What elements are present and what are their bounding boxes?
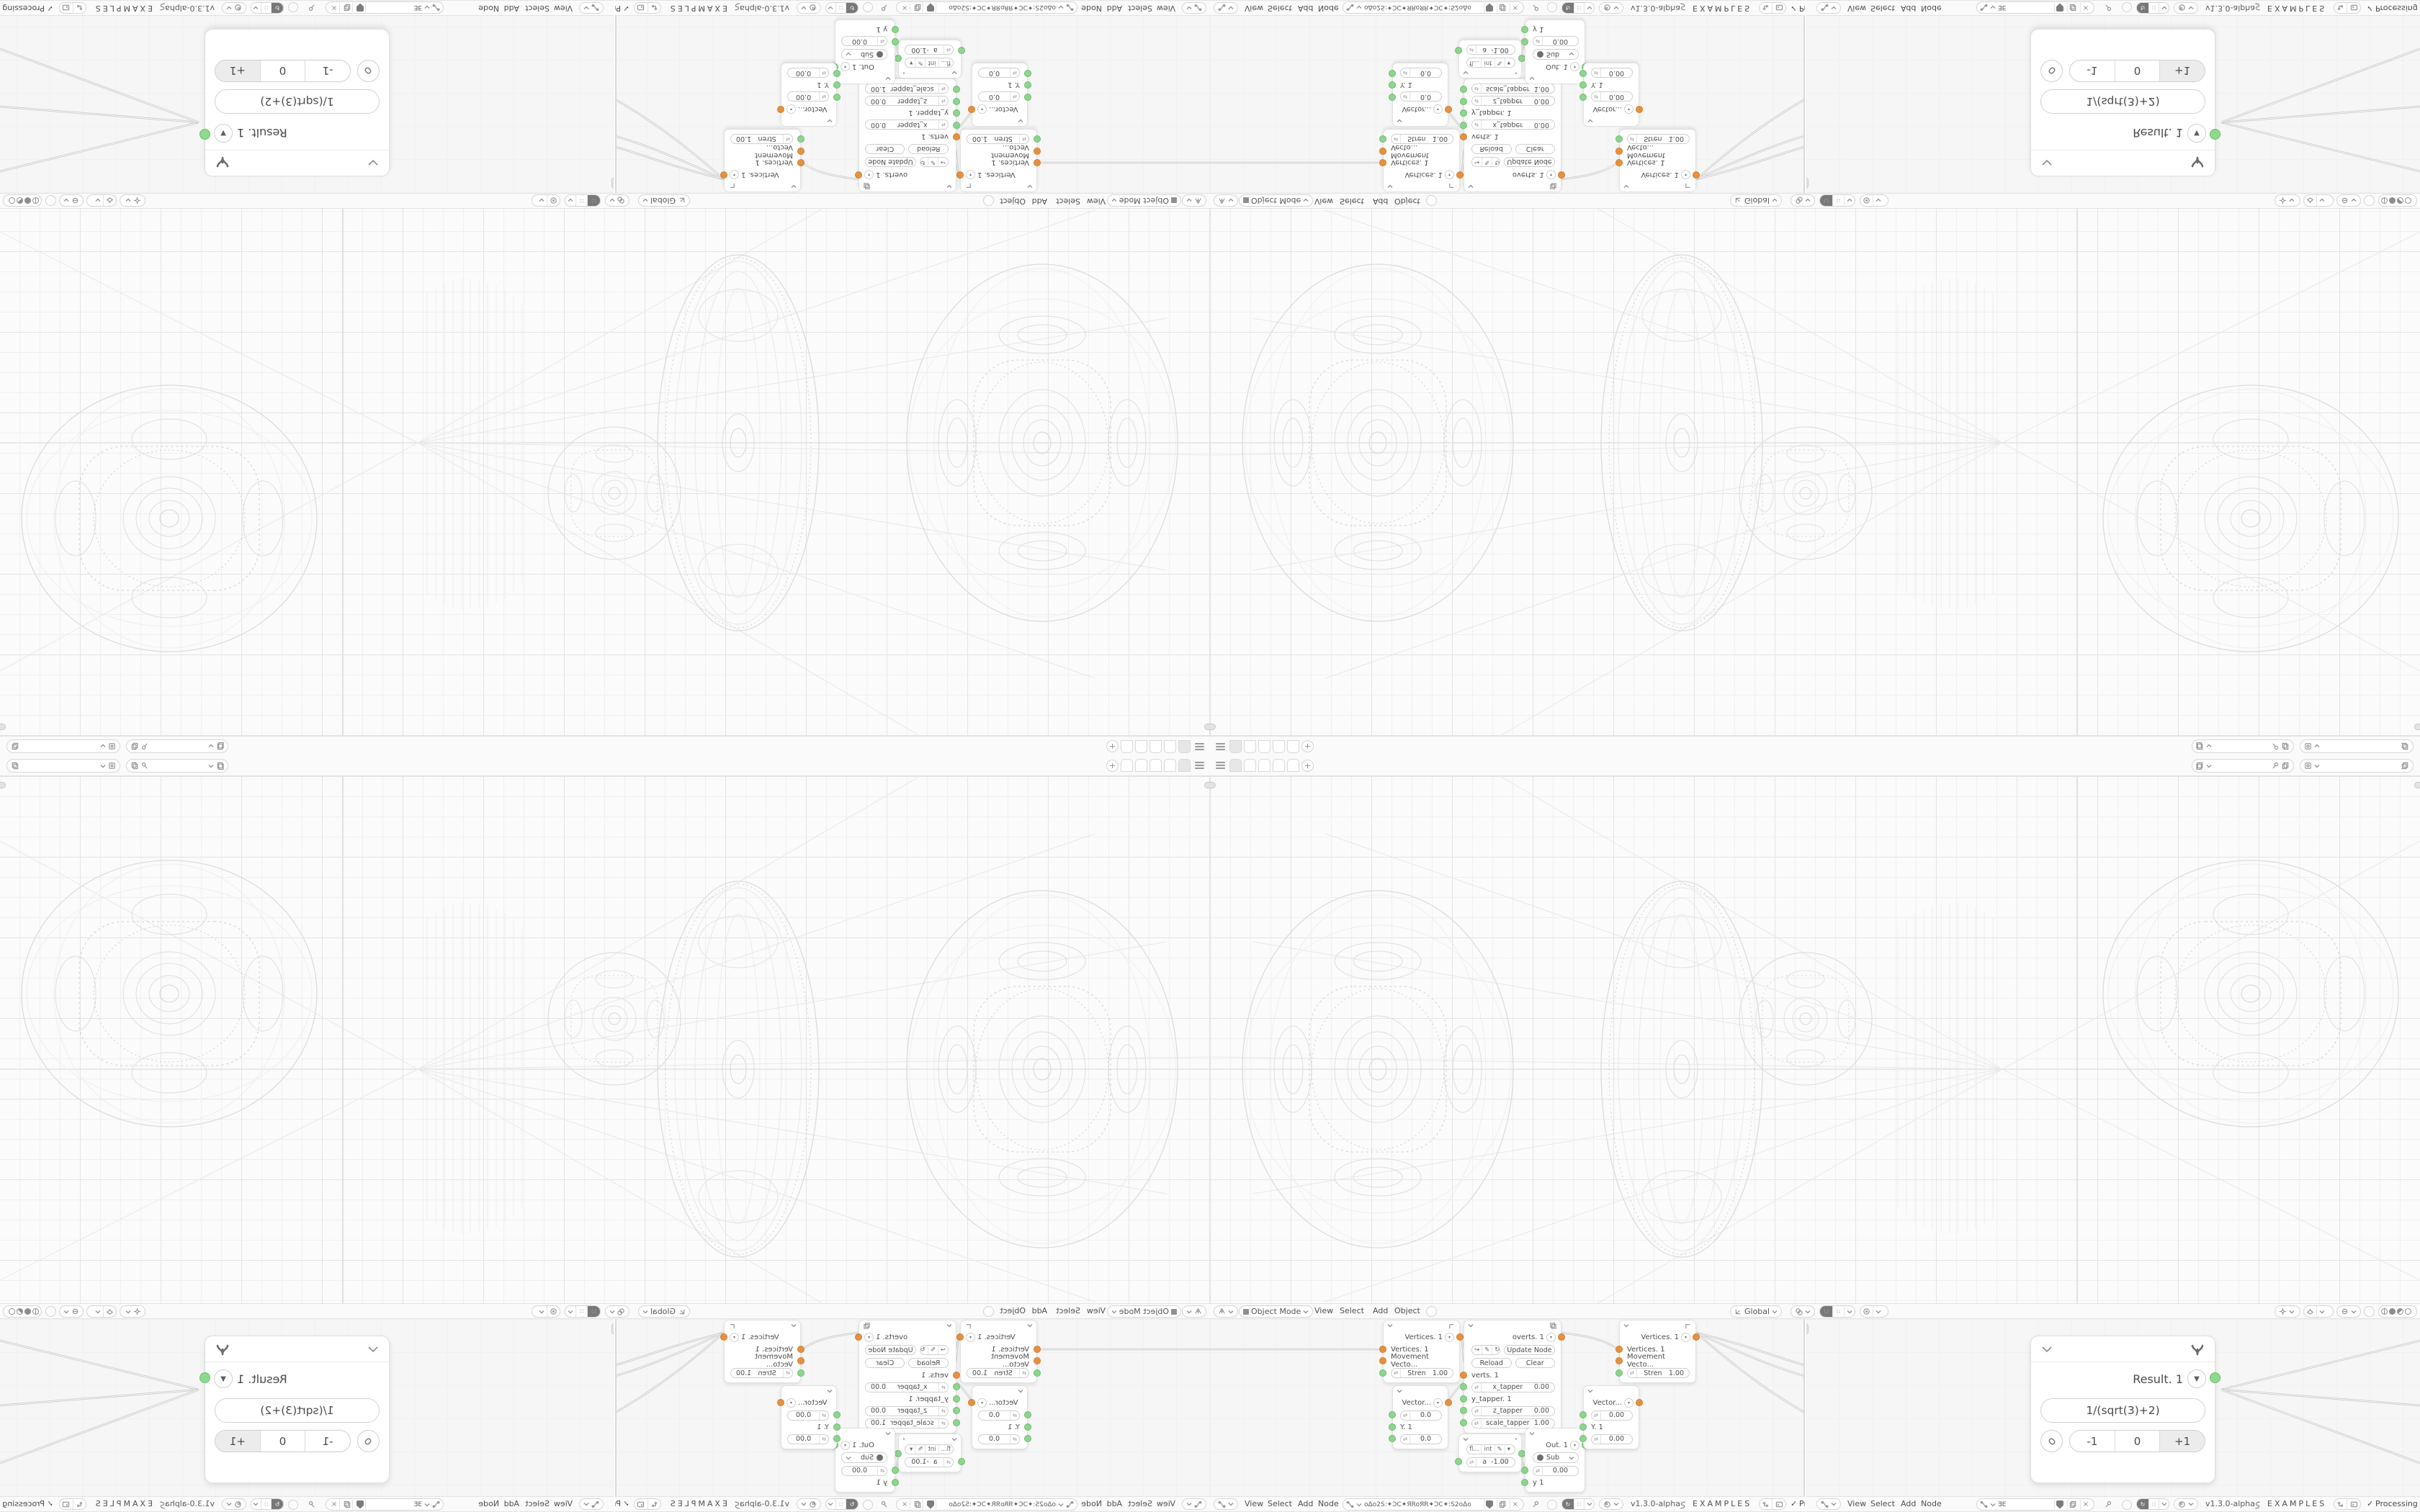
number-type-segment[interactable]: fl... int ✎ ▾ — [1466, 1444, 1515, 1454]
link-button[interactable] — [2040, 1430, 2063, 1452]
nodes-tool-icon[interactable] — [2334, 3, 2347, 13]
x-input-slider[interactable]: ⇄0.00 — [1533, 1466, 1579, 1476]
copy-button[interactable] — [342, 3, 353, 12]
menu-node[interactable]: Node — [1081, 1499, 1102, 1508]
menu-select[interactable]: Select — [525, 1499, 550, 1508]
menu-select[interactable]: Select — [1870, 1499, 1895, 1508]
workspace-tab[interactable] — [1273, 740, 1285, 753]
input-socket[interactable] — [1389, 70, 1396, 77]
output-socket[interactable] — [200, 1372, 210, 1383]
console-icon[interactable] — [2347, 3, 2360, 13]
input-socket[interactable] — [1379, 1346, 1386, 1353]
wrench-icon[interactable]: ✎ — [915, 1445, 925, 1454]
add-workspace-button[interactable]: + — [1301, 741, 1314, 753]
viewer-node[interactable]: Vertices. 1▾ Vertices. 1 Movement Vecto.… — [1619, 1320, 1696, 1383]
x-input-slider[interactable]: ⇄0.00 — [841, 1466, 887, 1476]
x-value-slider[interactable]: ⇄0.00 — [787, 1410, 829, 1421]
viewer-node[interactable]: Vertices. 1▾ Vertices. 1 Movement Vecto.… — [1619, 129, 1696, 192]
mode-dropdown[interactable]: Object Mode — [1239, 194, 1313, 207]
editor-type-button[interactable] — [1214, 1498, 1238, 1510]
workspace-tab[interactable] — [1121, 759, 1133, 772]
overlays-group[interactable] — [2303, 194, 2334, 207]
solid-shading-icon[interactable] — [2389, 197, 2396, 204]
x-value-slider[interactable]: ⇄0.00 — [1591, 1410, 1633, 1421]
edit-source-icon[interactable]: ✎ — [1482, 1346, 1492, 1354]
shading-modes[interactable] — [3, 194, 42, 207]
output-socket[interactable] — [855, 171, 862, 179]
z-value-slider[interactable]: ⇄0.0 — [1400, 68, 1442, 78]
menu-view[interactable]: View — [1087, 1306, 1106, 1315]
number-node[interactable]: • fl... int ✎ ▾ ⇄a -1.00 — [898, 1434, 962, 1472]
dropdown-button[interactable]: ▾ — [1681, 1333, 1690, 1342]
input-socket[interactable] — [1024, 1435, 1031, 1442]
workspace-tabs[interactable]: + — [1229, 759, 1314, 772]
material-shading-icon[interactable] — [17, 1308, 23, 1315]
tools-group[interactable] — [1759, 1498, 1786, 1510]
workspace-tab[interactable] — [1229, 740, 1242, 753]
add-workspace-button[interactable]: + — [1301, 760, 1314, 772]
menu-view[interactable]: View — [1245, 1499, 1263, 1508]
editor-type-button[interactable] — [1182, 1498, 1206, 1510]
nodes-tool-icon[interactable] — [1760, 3, 1773, 13]
node-editor-canvas[interactable]: Result. 1 ▼ 1/(sqrt(3)+2) -1 0 +1 — [0, 16, 614, 193]
wrench-icon[interactable]: ✎ — [1495, 58, 1505, 67]
reload-button[interactable]: Reload — [1471, 1358, 1512, 1368]
number-node[interactable]: • fl... int ✎ ▾ ⇄a -1.00 — [1458, 1434, 1522, 1472]
refresh-icon[interactable]: ↻ — [920, 1346, 928, 1354]
menu-add[interactable]: Add — [1107, 4, 1122, 13]
viewer-toggle-icon[interactable] — [964, 1322, 972, 1330]
input-socket[interactable] — [892, 1479, 899, 1486]
dropdown-button[interactable]: ▾ — [864, 171, 874, 180]
z-value-slider[interactable]: ⇄0.00 — [1591, 1434, 1633, 1444]
dropdown-button[interactable]: ▾ — [1570, 1441, 1579, 1450]
tools-group[interactable] — [1759, 2, 1786, 14]
dropdown-button[interactable]: ▾ — [1433, 1398, 1443, 1408]
pin-icon[interactable] — [2105, 4, 2112, 12]
viewer-node[interactable]: Vertices. 1▾ Vertices. 1 Movement Vecto.… — [1383, 129, 1460, 192]
examples-menu[interactable]: EXAMPLES — [1693, 4, 1752, 13]
dropdown-button[interactable]: ▾ — [1570, 63, 1579, 72]
fake-user-shield-button[interactable] — [355, 3, 366, 12]
snap-group[interactable]: ∷ — [565, 1305, 601, 1318]
menu-select[interactable]: Select — [1128, 4, 1152, 13]
edit-source-icon[interactable]: ✎ — [1482, 158, 1492, 166]
output-socket[interactable] — [1445, 106, 1452, 113]
operation-dropdown[interactable]: Sub — [841, 49, 887, 60]
menu-node[interactable]: Node — [1921, 4, 1942, 13]
shading-circle[interactable] — [45, 195, 56, 206]
area-resize-handle[interactable] — [611, 1323, 614, 1335]
filter-circle-button[interactable] — [288, 2, 298, 12]
output-socket[interactable] — [2210, 1372, 2220, 1383]
number-node[interactable]: • fl... int ✎ ▾ ⇄a -1.00 — [898, 40, 962, 78]
menu-node[interactable]: Node — [1318, 1499, 1339, 1508]
output-socket[interactable] — [1445, 1399, 1452, 1406]
math-node[interactable]: Out. 1▾ Sub ⇄0.00 y 1 — [835, 1428, 895, 1493]
workspace-tab[interactable] — [1178, 759, 1191, 772]
workspace-tab[interactable] — [1273, 759, 1285, 772]
viewer-node[interactable]: Vertices. 1▾ Vertices. 1 Movement Vecto.… — [960, 129, 1037, 192]
minus-one-button[interactable]: -1 — [305, 1431, 350, 1452]
strength-slider[interactable]: ⇄Stren1.00 — [967, 1368, 1029, 1378]
rendered-shading-icon[interactable] — [2405, 197, 2411, 204]
z-value-slider[interactable]: ⇄0.00 — [787, 1434, 829, 1444]
workspace-tab[interactable] — [1229, 759, 1242, 772]
link-button[interactable] — [2040, 60, 2063, 82]
view-layer-selector[interactable] — [6, 759, 120, 773]
z-value-slider[interactable]: ⇄0.00 — [787, 68, 829, 78]
output-socket[interactable] — [1456, 171, 1464, 179]
update-dropdown[interactable] — [251, 1499, 261, 1509]
pin-icon[interactable] — [308, 4, 315, 12]
strength-slider[interactable]: ⇄Stren1.00 — [967, 134, 1029, 144]
x-input-slider[interactable]: ⇄0.00 — [841, 37, 887, 47]
overlays-dropdown[interactable] — [2317, 1306, 2327, 1317]
menu-select[interactable]: Select — [1340, 1306, 1364, 1315]
node-editor-canvas[interactable]: Result. 1 ▼ 1/(sqrt(3)+2) -1 0 +1 — [1806, 16, 2420, 193]
x-tapper-slider[interactable]: ⇄x_tapper0.00 — [1471, 1382, 1555, 1392]
collapse-chevron-icon[interactable] — [1397, 1389, 1402, 1393]
output-socket[interactable] — [2210, 129, 2220, 140]
nodes-tool-icon[interactable] — [1760, 1499, 1773, 1509]
input-socket[interactable] — [1379, 148, 1386, 155]
number-type-segment[interactable]: fl... int ✎ ▾ — [905, 58, 954, 68]
input-socket[interactable] — [1615, 1369, 1623, 1377]
strength-slider[interactable]: ⇄Stren1.00 — [1627, 1368, 1690, 1378]
menu-node[interactable]: Node — [478, 4, 499, 13]
script-node[interactable]: overts. 1▾ ↪ ✎ ↻ Update Node Reload Clea… — [1464, 78, 1561, 192]
collapse-chevron-icon[interactable] — [1387, 1323, 1393, 1328]
fake-user-shield-button[interactable] — [926, 1500, 936, 1509]
workspace-tab[interactable] — [1135, 740, 1147, 753]
editors-menu-icon[interactable] — [1216, 762, 1225, 770]
area-resize-handle[interactable] — [2414, 782, 2420, 788]
filter-circle-button[interactable] — [2122, 1500, 2132, 1510]
dropdown-button[interactable]: ▾ — [966, 1333, 975, 1342]
viewer-toggle-icon[interactable] — [1448, 1322, 1456, 1330]
editors-menu-icon[interactable] — [1216, 742, 1225, 750]
strength-slider[interactable]: ⇄Stren1.00 — [1391, 1368, 1453, 1378]
menu-select[interactable]: Select — [1056, 197, 1080, 206]
snap-group[interactable]: ∷ — [1819, 1305, 1855, 1318]
fake-user-shield-button[interactable] — [1484, 3, 1494, 12]
menu-view[interactable]: View — [1847, 1499, 1866, 1508]
area-resize-handle[interactable] — [611, 177, 614, 189]
update-group[interactable]: ↻ ∷ — [2136, 1498, 2169, 1510]
shading-circle[interactable] — [45, 1306, 56, 1317]
menu-select[interactable]: Select — [1128, 1499, 1152, 1508]
dropdown-arrow[interactable]: ▾ — [1505, 1445, 1512, 1454]
shading-circle[interactable] — [2364, 1306, 2375, 1317]
wireframe-shading-icon[interactable] — [32, 197, 39, 204]
xray-toggle[interactable] — [59, 194, 84, 207]
a-value-slider[interactable]: ⇄a -1.00 — [1466, 45, 1515, 55]
x-tapper-slider[interactable]: ⇄x_tapper0.00 — [1471, 120, 1555, 130]
viewer-toggle-icon[interactable] — [728, 1322, 736, 1330]
live-update-toggle[interactable]: ↻ — [846, 3, 858, 13]
refresh-icon[interactable]: ↻ — [920, 158, 928, 166]
menu-select[interactable]: Select — [1056, 1306, 1080, 1315]
examples-menu[interactable]: EXAMPLES — [2267, 4, 2326, 13]
workspace-tabs[interactable]: + — [1106, 759, 1191, 772]
copy-icon[interactable] — [130, 762, 138, 770]
menu-select[interactable]: Select — [525, 4, 550, 13]
stepper-buttons[interactable]: -1 0 +1 — [215, 60, 351, 82]
shading-modes[interactable] — [3, 1305, 42, 1318]
mode-dropdown[interactable]: Object Mode — [1107, 194, 1181, 207]
viewer-node[interactable]: Vertices. 1▾ Vertices. 1 Movement Vecto.… — [960, 1320, 1037, 1383]
pin-icon[interactable] — [140, 762, 148, 770]
output-socket[interactable] — [956, 171, 964, 179]
math-node[interactable]: Out. 1▾ Sub ⇄0.00 y 1 — [835, 19, 895, 84]
input-socket[interactable] — [1460, 86, 1467, 93]
live-update-toggle[interactable]: ↻ — [1562, 3, 1574, 13]
pin-icon[interactable] — [2272, 762, 2280, 770]
copy-button[interactable] — [2067, 3, 2078, 12]
scene-selector[interactable] — [126, 759, 228, 773]
menu-view[interactable]: View — [554, 1499, 573, 1508]
collapse-chevron-icon[interactable] — [951, 71, 957, 75]
script-node[interactable]: overts. 1▾ ↪ ✎ ↻ Update Node Reload Clea… — [1464, 1320, 1561, 1434]
live-update-toggle[interactable]: ↻ — [1562, 1499, 1574, 1509]
input-socket[interactable] — [953, 133, 960, 140]
nodes-tool-icon[interactable] — [647, 1499, 660, 1509]
console-icon[interactable] — [1773, 3, 1785, 13]
unlink-button[interactable]: × — [329, 1500, 340, 1509]
input-socket[interactable] — [1460, 109, 1467, 117]
menu-add[interactable]: Add — [1107, 1499, 1122, 1508]
dropdown-button[interactable]: ▾ — [786, 1398, 796, 1408]
stepper-buttons[interactable]: -1 0 +1 — [215, 1430, 351, 1452]
z-tapper-slider[interactable]: ⇄z_tapper0.00 — [865, 96, 949, 107]
input-socket[interactable] — [833, 1411, 841, 1418]
menu-view[interactable]: View — [1314, 197, 1333, 206]
solid-shading-icon[interactable] — [2389, 1308, 2396, 1315]
edit-source-icon[interactable]: ✎ — [928, 158, 938, 166]
workspace-tab[interactable] — [1258, 740, 1270, 753]
input-socket[interactable] — [1460, 122, 1467, 129]
input-socket[interactable] — [833, 70, 841, 77]
input-socket[interactable] — [1460, 98, 1467, 105]
input-socket[interactable] — [953, 1383, 960, 1390]
dropdown-button[interactable]: ▾ — [730, 1333, 739, 1342]
menu-node[interactable]: Node — [478, 1499, 499, 1508]
input-socket[interactable] — [1389, 94, 1396, 101]
reload-button[interactable]: Reload — [1471, 144, 1512, 154]
wifi-toggle-icon[interactable]: ↪ — [938, 1346, 948, 1354]
examples-menu[interactable]: EXAMPLES — [94, 4, 153, 13]
unlink-button[interactable]: × — [900, 3, 910, 12]
update-dropdown[interactable] — [826, 3, 835, 13]
filter-circle-button[interactable] — [2122, 2, 2132, 12]
3d-viewport-canvas[interactable] — [0, 776, 1210, 1303]
menu-add[interactable]: Add — [1032, 197, 1047, 206]
collapse-chevron-icon[interactable] — [1529, 1431, 1535, 1436]
editors-menu-icon[interactable] — [1195, 742, 1204, 750]
dropdown-button[interactable]: ▾ — [1681, 171, 1690, 180]
a-value-slider[interactable]: ⇄a -1.00 — [905, 45, 954, 55]
menu-object[interactable]: Object — [1394, 197, 1420, 206]
plus-one-button[interactable]: +1 — [2160, 1431, 2205, 1452]
collapse-chevron-icon[interactable] — [885, 76, 891, 81]
operation-dropdown[interactable]: Sub — [841, 1452, 887, 1463]
show-gizmo-dropdown[interactable] — [120, 194, 145, 207]
workspace-tab[interactable] — [1164, 759, 1176, 772]
update-dropdown[interactable] — [1585, 1499, 1594, 1509]
minus-one-button[interactable]: -1 — [305, 60, 350, 81]
overlays-dropdown[interactable] — [93, 195, 103, 206]
node-tree-selector[interactable]: oΔo2S:✦ƆC✦ЯRoЯR✦ƆC✦:S2oΔo × — [896, 1, 1077, 14]
collapse-chevron-icon[interactable] — [1529, 76, 1535, 81]
output-socket[interactable] — [1636, 1399, 1643, 1406]
shading-modes[interactable] — [2378, 194, 2417, 207]
input-socket[interactable] — [953, 1395, 960, 1403]
unlink-button[interactable]: × — [1510, 3, 1520, 12]
snap-dropdown[interactable] — [1845, 195, 1855, 206]
overlays-dropdown[interactable] — [93, 1306, 103, 1317]
dropdown-button[interactable]: ▾ — [1546, 171, 1556, 180]
output-socket[interactable] — [720, 171, 727, 179]
input-socket[interactable] — [1379, 135, 1386, 143]
input-socket[interactable] — [1615, 159, 1623, 166]
proportional-edit-group[interactable] — [1860, 1305, 1888, 1318]
viewer-toggle-icon[interactable] — [1684, 1322, 1692, 1330]
transform-orientation-dropdown[interactable]: Global — [1730, 194, 1782, 207]
input-socket[interactable] — [1389, 1435, 1396, 1442]
proportional-edit-group[interactable] — [532, 1305, 560, 1318]
console-icon[interactable] — [60, 3, 73, 13]
input-socket[interactable] — [953, 1372, 960, 1379]
console-icon[interactable] — [60, 1499, 73, 1509]
collapse-chevron-icon[interactable] — [1623, 184, 1629, 189]
falloff-dropdown[interactable] — [1873, 1306, 1883, 1317]
material-shading-icon[interactable] — [2397, 1308, 2403, 1315]
collapse-chevron-icon[interactable] — [827, 119, 833, 123]
collapse-chevron-icon[interactable] — [1027, 184, 1033, 189]
wifi-toggle-icon[interactable]: ↪ — [1472, 1346, 1482, 1354]
menu-add[interactable]: Add — [1032, 1306, 1047, 1315]
console-icon[interactable] — [1773, 1499, 1785, 1509]
minus-one-button[interactable]: -1 — [2070, 1431, 2115, 1452]
node-tree-selector[interactable]: oΔo2S:✦ƆC✦ЯRoЯR✦ƆC✦:S2oΔo × — [1343, 1, 1524, 14]
formula-field[interactable]: 1/(sqrt(3)+2) — [215, 89, 380, 114]
nodes-tool-icon[interactable] — [647, 3, 660, 13]
collapse-chevron-icon[interactable] — [791, 1323, 797, 1328]
draw-mode-dropdown[interactable] — [2174, 1498, 2198, 1510]
menu-object[interactable]: Object — [1000, 197, 1026, 206]
node-editor-canvas[interactable]: Vertices. 1▾ Vertices. 1 Movement Vecto.… — [615, 1319, 1210, 1496]
show-gizmo-dropdown[interactable] — [2275, 1305, 2300, 1318]
workspace-tab[interactable] — [1287, 740, 1299, 753]
input-socket[interactable] — [1379, 1369, 1386, 1377]
pin-icon[interactable] — [1532, 1500, 1540, 1508]
wrench-icon[interactable]: ✎ — [1495, 1445, 1505, 1454]
vector-in-node[interactable]: Vector...▾ ⇄0.0 Y. 1 ⇄0.0 — [1392, 63, 1448, 127]
node-tree-selector[interactable]: ƎE × — [1976, 1498, 2094, 1511]
result-node[interactable]: Result. 1 ▼ 1/(sqrt(3)+2) -1 0 +1 — [205, 29, 390, 176]
input-socket[interactable] — [953, 1407, 960, 1414]
script-node[interactable]: overts. 1▾ ↪ ✎ ↻ Update Node Reload Clea… — [859, 1320, 956, 1434]
input-socket[interactable] — [892, 1467, 899, 1474]
result-node[interactable]: Result. 1 ▼ 1/(sqrt(3)+2) -1 0 +1 — [2030, 29, 2215, 176]
snap-magnet-toggle[interactable] — [587, 1306, 600, 1317]
menu-view[interactable]: View — [1847, 4, 1866, 13]
input-socket[interactable] — [1460, 1395, 1467, 1403]
wireframe-shading-icon[interactable] — [2381, 197, 2388, 204]
solid-shading-icon[interactable] — [24, 197, 31, 204]
x-value-slider[interactable]: ⇄0.0 — [1400, 1410, 1442, 1421]
3d-viewport-canvas[interactable] — [0, 209, 1210, 736]
workspace-tab[interactable] — [1178, 740, 1191, 753]
viewer-toggle-icon[interactable] — [1448, 183, 1456, 191]
editors-menu-icon[interactable] — [1195, 762, 1204, 770]
clear-button[interactable]: Clear — [865, 144, 905, 154]
fake-user-shield-button[interactable] — [355, 1500, 366, 1509]
input-socket[interactable] — [1521, 1479, 1528, 1486]
collapse-chevron-icon[interactable] — [1397, 119, 1402, 123]
viewer-toggle-icon[interactable] — [1684, 183, 1692, 191]
input-socket[interactable] — [1024, 94, 1031, 101]
update-dropdown[interactable] — [251, 3, 261, 13]
collapse-chevron-icon[interactable] — [1587, 1389, 1593, 1393]
z-tapper-slider[interactable]: ⇄z_tapper0.00 — [865, 1406, 949, 1416]
live-update-toggle[interactable]: ↻ — [846, 1499, 858, 1509]
overlays-dropdown[interactable] — [2317, 195, 2327, 206]
zero-button[interactable]: 0 — [2115, 60, 2161, 81]
input-socket[interactable] — [833, 94, 841, 101]
draw-mode-dropdown[interactable] — [797, 2, 821, 14]
x-value-slider[interactable]: ⇄0.0 — [978, 1410, 1020, 1421]
xray-toggle[interactable] — [2336, 194, 2361, 207]
editor-type-button[interactable] — [579, 1498, 604, 1510]
z-tapper-slider[interactable]: ⇄z_tapper0.00 — [1471, 1406, 1555, 1416]
math-node[interactable]: Out. 1▾ Sub ⇄0.00 y 1 — [1525, 19, 1585, 84]
menu-add[interactable]: Add — [1901, 4, 1916, 13]
operation-dropdown[interactable]: Sub — [1533, 1452, 1579, 1463]
collapse-chevron-icon[interactable] — [827, 1389, 833, 1393]
dropdown-arrow[interactable]: ▾ — [907, 1445, 915, 1454]
update-group[interactable]: ↻ ∷ — [251, 2, 284, 14]
input-socket[interactable] — [1034, 1357, 1041, 1364]
examples-menu[interactable]: EXAMPLES — [1693, 1499, 1752, 1508]
formula-field[interactable]: 1/(sqrt(3)+2) — [2040, 89, 2205, 114]
vector-in-node[interactable]: Vector...▾ ⇄0.00 Y. 1 ⇄0.00 — [781, 63, 837, 127]
copy-icon[interactable] — [2282, 762, 2290, 770]
dropdown-button[interactable]: ▾ — [1433, 105, 1443, 114]
collapse-chevron-icon[interactable] — [1623, 1323, 1629, 1328]
vector-in-node[interactable]: Vector...▾ ⇄0.00 Y. 1 ⇄0.00 — [781, 1385, 837, 1449]
editor-type-button[interactable] — [1182, 2, 1206, 14]
input-socket[interactable] — [1460, 133, 1467, 140]
examples-menu[interactable]: EXAMPLES — [668, 4, 727, 13]
copy-button[interactable] — [342, 1500, 353, 1509]
menu-node[interactable]: Node — [1318, 4, 1339, 13]
update-node-button[interactable]: Update Node — [1504, 157, 1555, 167]
update-dropdown[interactable] — [2159, 1499, 2169, 1509]
input-socket[interactable] — [1455, 47, 1462, 54]
editor-type-button[interactable] — [1182, 194, 1206, 207]
input-socket[interactable] — [953, 98, 960, 105]
input-socket[interactable] — [953, 122, 960, 129]
update-node-button[interactable]: Update Node — [1504, 1345, 1555, 1355]
input-socket[interactable] — [797, 1369, 805, 1377]
refresh-icon[interactable]: ↻ — [1492, 158, 1500, 166]
node-editor-canvas[interactable]: Result. 1 ▼ 1/(sqrt(3)+2) -1 0 +1 — [1806, 1319, 2420, 1496]
collapse-chevron-icon[interactable] — [1468, 1323, 1474, 1328]
pivot-point-dropdown[interactable] — [605, 1305, 629, 1318]
input-socket[interactable] — [1389, 1423, 1396, 1431]
